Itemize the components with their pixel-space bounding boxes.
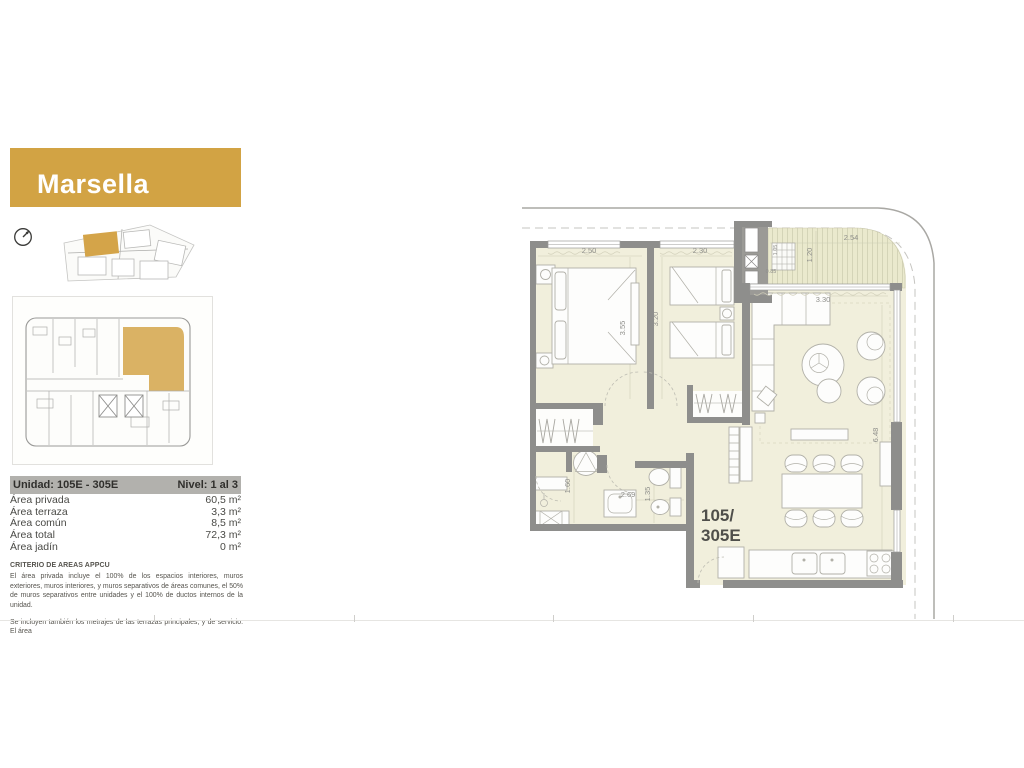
pillow: [555, 321, 566, 359]
pillow: [722, 270, 731, 302]
svg-text:3.20: 3.20: [651, 312, 660, 327]
pillow: [555, 272, 566, 310]
shelving: [729, 427, 739, 483]
closet2-floor: [693, 391, 742, 417]
toilet: [649, 469, 669, 486]
svg-text:6.48: 6.48: [871, 428, 880, 443]
bed-bench: [631, 283, 639, 345]
svg-text:2.30: 2.30: [693, 246, 708, 255]
unit-level: Nivel: 1 al 3: [177, 479, 238, 491]
toilet-tank: [670, 466, 681, 488]
coffee-table: [802, 344, 844, 386]
area-value: 60,5 m²: [205, 495, 241, 507]
svg-text:2.69: 2.69: [621, 490, 636, 499]
sink: [820, 553, 845, 574]
dining-table: [782, 474, 862, 508]
site-plan-thumbnail: [58, 221, 198, 291]
coffee-table-small: [817, 379, 841, 403]
project-title: Marsella: [37, 171, 149, 198]
criteria-note: CRITERIO DE AREAS APPCU El área privada …: [10, 562, 243, 637]
svg-text:3.30: 3.30: [816, 295, 831, 304]
svg-text:2.50: 2.50: [582, 246, 597, 255]
unit-table-header: Unidad: 105E - 305E Nivel: 1 al 3: [10, 476, 241, 494]
svg-text:2.54: 2.54: [844, 233, 859, 242]
window-counter: [880, 442, 892, 486]
svg-text:1.05: 1.05: [773, 245, 779, 256]
pillow: [722, 325, 731, 355]
stove: [867, 551, 894, 576]
floor-plan: 2.50 2.30 3.55 3.20 2.54 1.20 1.05 0.85 …: [520, 195, 970, 630]
kitchen-furniture: [718, 547, 894, 578]
criteria-heading: CRITERIO DE AREAS APPCU: [10, 562, 243, 569]
dining-furniture: [782, 455, 863, 527]
site-highlighted-building: [83, 231, 119, 256]
svg-text:1.60: 1.60: [563, 479, 572, 494]
criteria-body: El área privada incluye el 100% de los e…: [10, 572, 243, 611]
area-table: Área privada 60,5 m² Área terraza 3,3 m²…: [10, 495, 241, 554]
baseline-tick: [354, 615, 355, 622]
sink: [792, 553, 817, 574]
area-value: 0 m²: [220, 542, 241, 554]
svg-text:105/: 105/: [701, 506, 734, 525]
baseline-tick: [154, 615, 155, 622]
fridge: [718, 547, 744, 578]
floorplate-keyplan: [13, 297, 212, 464]
console-table: [791, 429, 848, 440]
side-table: [755, 413, 765, 423]
bidet-tank: [670, 498, 681, 516]
area-label: Área jadín: [10, 542, 58, 554]
svg-text:3.55: 3.55: [618, 321, 627, 336]
floorplate-keyplan-box: [12, 296, 213, 465]
bidet: [651, 500, 669, 515]
svg-text:305E: 305E: [701, 526, 741, 545]
svg-text:1.35: 1.35: [643, 487, 652, 502]
area-label: Área privada: [10, 495, 70, 507]
table-row: Área jadín 0 m²: [10, 542, 241, 554]
shower: [574, 451, 599, 476]
north-arrow-icon: [12, 226, 34, 248]
table-row: Área privada 60,5 m²: [10, 495, 241, 507]
svg-text:1.20: 1.20: [805, 248, 814, 263]
project-banner: Marsella: [10, 148, 241, 207]
svg-text:0.85: 0.85: [766, 269, 777, 275]
cabinet: [740, 427, 752, 481]
unit-id: Unidad: 105E - 305E: [13, 479, 118, 491]
